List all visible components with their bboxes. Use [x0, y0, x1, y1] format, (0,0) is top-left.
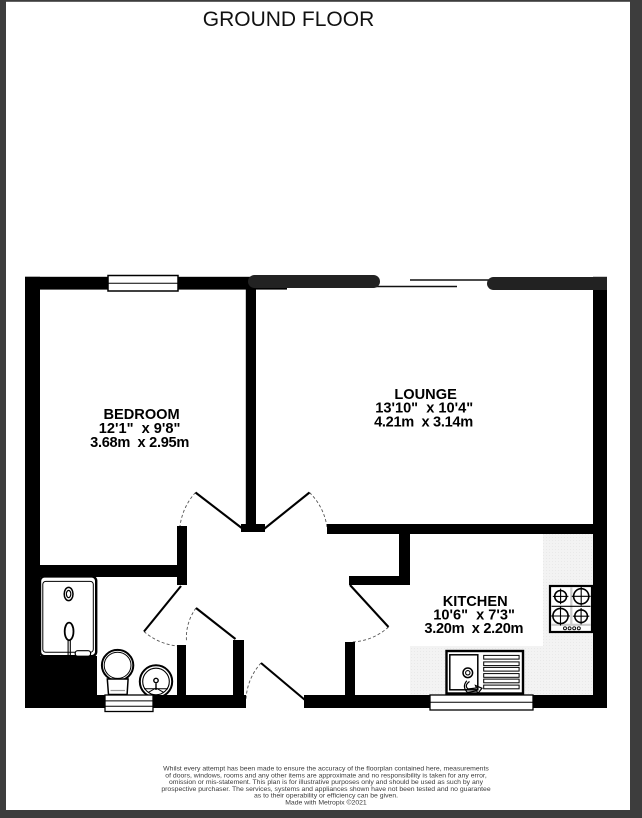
- svg-text:GROUND FLOOR: GROUND FLOOR: [203, 8, 375, 31]
- svg-text:Made with Metropix ©2021: Made with Metropix ©2021: [285, 798, 367, 806]
- svg-text:3.68m x 2.95m: 3.68m x 2.95m: [90, 435, 189, 451]
- svg-text:4.21m x 3.14m: 4.21m x 3.14m: [374, 414, 473, 430]
- svg-text:3.20m x 2.20m: 3.20m x 2.20m: [424, 621, 523, 637]
